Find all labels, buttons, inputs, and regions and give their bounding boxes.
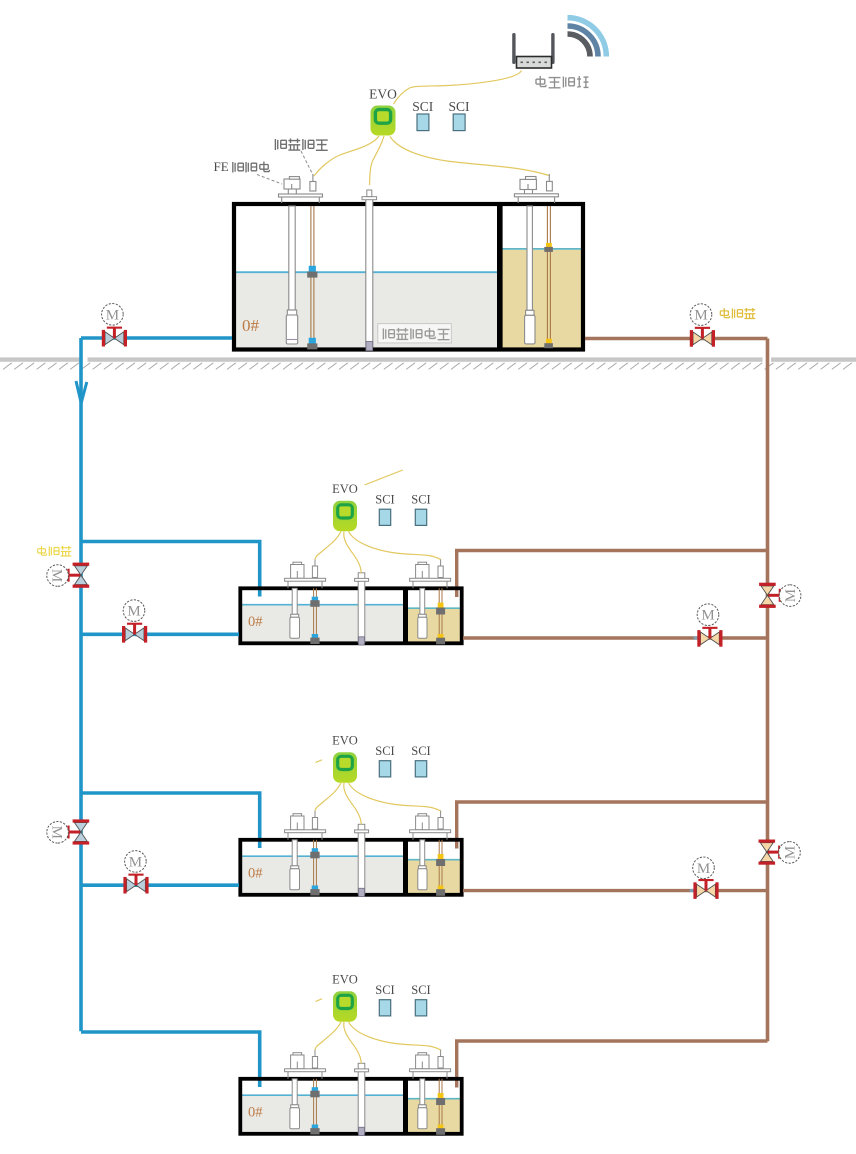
svg-text:SCI: SCI (412, 99, 434, 114)
svg-text:EVO: EVO (369, 87, 397, 102)
svg-text:FE: FE (214, 159, 229, 174)
svg-text:0#: 0# (242, 316, 260, 335)
svg-text:SCI: SCI (448, 99, 470, 114)
